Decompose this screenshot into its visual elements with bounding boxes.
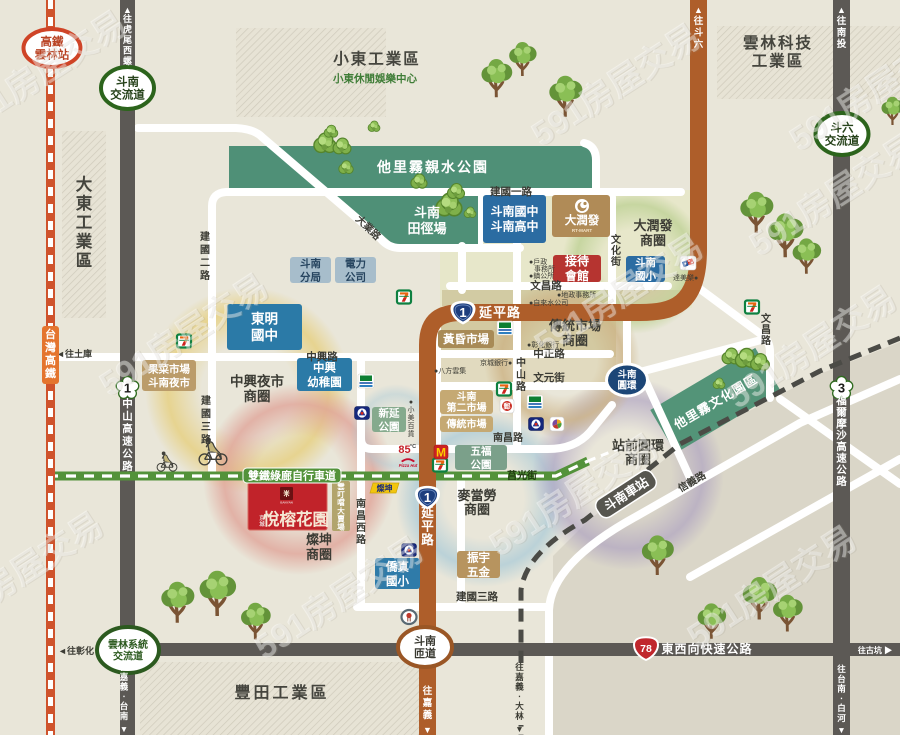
svg-text:路: 路 — [356, 533, 367, 546]
svg-text:東: 東 — [76, 193, 93, 213]
svg-text:雙鐵綠廊自行車道: 雙鐵綠廊自行車道 — [248, 469, 336, 483]
svg-text:小東休閒娛樂中心: 小東休閒娛樂中心 — [332, 72, 417, 85]
svg-text:‧: ‧ — [518, 691, 521, 701]
svg-text:螺: 螺 — [123, 55, 132, 66]
svg-text:斗南: 斗南 — [457, 390, 477, 403]
svg-text:大潤發: 大潤發 — [565, 213, 600, 227]
svg-text:匝道: 匝道 — [414, 646, 436, 660]
svg-text:他里霧親水公園: 他里霧親水公園 — [376, 159, 489, 175]
svg-text:街: 街 — [610, 255, 621, 268]
svg-text:建: 建 — [199, 230, 211, 243]
svg-text:接待: 接待 — [565, 253, 589, 268]
svg-text:斗南: 斗南 — [617, 369, 637, 381]
svg-text:公司: 公司 — [345, 271, 366, 283]
svg-text:昌: 昌 — [356, 510, 366, 522]
svg-text:平: 平 — [421, 520, 434, 534]
svg-text:傳統市場: 傳統市場 — [446, 418, 487, 431]
svg-text:爾: 爾 — [835, 407, 847, 419]
svg-text:燦坤: 燦坤 — [306, 532, 332, 547]
svg-text:▲: ▲ — [694, 5, 703, 15]
svg-text:台: 台 — [45, 327, 56, 341]
svg-text:●自來水公司: ●自來水公司 — [529, 298, 568, 307]
svg-text:▲: ▲ — [837, 5, 846, 15]
svg-text:●: ● — [409, 399, 413, 406]
svg-text:文元街: 文元街 — [532, 371, 565, 384]
svg-text:路: 路 — [421, 532, 434, 547]
svg-text:商圈: 商圈 — [464, 502, 490, 517]
svg-text:電力: 電力 — [345, 257, 366, 270]
svg-text:五福: 五福 — [471, 444, 492, 457]
svg-text:斗南: 斗南 — [116, 75, 139, 89]
svg-text:文昌路: 文昌路 — [529, 279, 562, 292]
svg-text:分局: 分局 — [300, 270, 321, 283]
svg-text:往: 往 — [837, 15, 847, 27]
svg-text:●鎮公所: ●鎮公所 — [529, 271, 554, 280]
svg-text:公園: 公園 — [471, 459, 492, 471]
svg-text:沙: 沙 — [836, 430, 847, 442]
svg-text:斗南: 斗南 — [414, 634, 436, 648]
svg-text:▼: ▼ — [423, 725, 432, 735]
svg-text:山: 山 — [516, 368, 526, 381]
svg-text:建: 建 — [200, 394, 212, 407]
svg-text:投: 投 — [837, 38, 847, 50]
svg-text:南昌路: 南昌路 — [493, 431, 524, 444]
svg-text:事務所: 事務所 — [534, 264, 555, 273]
svg-text:BANYAN: BANYAN — [280, 501, 293, 505]
svg-text:RT-MART: RT-MART — [572, 228, 592, 233]
svg-text:鐵: 鐵 — [45, 366, 56, 380]
svg-text:義: 義 — [515, 682, 524, 692]
svg-text:昌: 昌 — [761, 324, 771, 336]
svg-text:區: 區 — [76, 251, 93, 270]
svg-text:斗南國中: 斗南國中 — [490, 204, 538, 219]
svg-text:延: 延 — [420, 505, 434, 520]
svg-text:高: 高 — [836, 440, 847, 453]
svg-text:‧: ‧ — [840, 693, 843, 703]
svg-text:中興夜市: 中興夜市 — [230, 373, 284, 389]
svg-text:二: 二 — [200, 257, 210, 269]
svg-text:圓環: 圓環 — [617, 380, 637, 392]
svg-text:高: 高 — [45, 353, 56, 367]
svg-text:公: 公 — [122, 448, 133, 460]
svg-text:西: 西 — [356, 522, 366, 534]
svg-text:化: 化 — [611, 244, 621, 257]
svg-text:義: 義 — [120, 682, 129, 692]
svg-text:文: 文 — [761, 312, 772, 325]
svg-text:五金: 五金 — [467, 565, 490, 579]
svg-text:往: 往 — [837, 664, 846, 674]
svg-text:延平路: 延平路 — [478, 305, 521, 320]
svg-text:交流道: 交流道 — [113, 649, 143, 662]
svg-text:悅榕花園: 悅榕花園 — [263, 509, 329, 529]
svg-text:振宇: 振宇 — [467, 550, 490, 564]
svg-text:高: 高 — [122, 422, 133, 435]
svg-text:雲林系統: 雲林系統 — [108, 638, 148, 651]
svg-text:路: 路 — [201, 433, 212, 446]
svg-text:斗南: 斗南 — [300, 257, 321, 270]
svg-text:工業區: 工業區 — [752, 51, 805, 70]
svg-text:小: 小 — [408, 405, 415, 414]
svg-text:嘉: 嘉 — [514, 672, 524, 682]
svg-text:台: 台 — [837, 674, 846, 684]
svg-text:國: 國 — [201, 408, 211, 420]
svg-text:百: 百 — [408, 422, 415, 430]
svg-text:路: 路 — [516, 380, 527, 393]
svg-text:3: 3 — [838, 381, 845, 396]
svg-text:白: 白 — [837, 703, 846, 713]
svg-text:大: 大 — [76, 174, 93, 194]
svg-text:林: 林 — [515, 711, 524, 721]
svg-text:78: 78 — [640, 643, 652, 655]
svg-text:商圈: 商圈 — [306, 547, 332, 562]
svg-text:路: 路 — [122, 460, 133, 473]
svg-text:貨: 貨 — [408, 429, 415, 438]
svg-text:往: 往 — [515, 662, 524, 672]
svg-text:嘉: 嘉 — [119, 672, 129, 682]
svg-text:▼: ▼ — [515, 724, 523, 734]
svg-text:往: 往 — [423, 685, 433, 697]
svg-text:美: 美 — [408, 413, 415, 422]
svg-text:業: 業 — [76, 231, 93, 251]
svg-text:南: 南 — [356, 497, 366, 510]
svg-text:南: 南 — [837, 684, 846, 694]
svg-text:麥當勞: 麥當勞 — [456, 488, 496, 503]
svg-text:斗南高中: 斗南高中 — [490, 219, 538, 234]
svg-text:斗南: 斗南 — [414, 205, 440, 220]
svg-text:‧: ‧ — [123, 691, 126, 701]
svg-text:大: 大 — [515, 701, 524, 711]
svg-text:公園: 公園 — [379, 421, 400, 433]
svg-text:商圈: 商圈 — [244, 388, 271, 404]
svg-text:速: 速 — [836, 452, 847, 465]
svg-text:往: 往 — [694, 15, 704, 27]
svg-text:往古坑 ▶: 往古坑 ▶ — [858, 645, 892, 655]
svg-text:國中: 國中 — [251, 327, 278, 343]
svg-text:●八方雲集: ●八方雲集 — [434, 366, 466, 375]
svg-text:灣: 灣 — [45, 340, 56, 354]
svg-text:往: 往 — [120, 662, 129, 672]
svg-text:第二市場: 第二市場 — [447, 401, 487, 414]
svg-text:西: 西 — [123, 46, 132, 56]
svg-text:▼: ▼ — [120, 724, 128, 734]
svg-text:路: 路 — [761, 334, 772, 347]
svg-text:中: 中 — [122, 397, 133, 410]
svg-text:福: 福 — [835, 394, 847, 407]
svg-text:三: 三 — [201, 421, 211, 433]
svg-text:南: 南 — [837, 27, 847, 39]
svg-text:路: 路 — [836, 475, 847, 488]
svg-text:大潤發: 大潤發 — [633, 218, 672, 233]
svg-text:文: 文 — [611, 233, 622, 246]
svg-text:國: 國 — [200, 244, 210, 256]
svg-text:幼稚園: 幼稚園 — [307, 375, 342, 389]
svg-text:田徑場: 田徑場 — [407, 221, 446, 236]
svg-text:工: 工 — [76, 214, 93, 232]
svg-text:中興路: 中興路 — [306, 350, 338, 363]
svg-text:中: 中 — [516, 356, 526, 369]
svg-text:黃昏市場: 黃昏市場 — [442, 332, 489, 346]
svg-text:雲林科技: 雲林科技 — [743, 33, 813, 52]
svg-text:義: 義 — [423, 709, 433, 721]
svg-text:河: 河 — [837, 713, 846, 723]
svg-text:小東工業區: 小東工業區 — [333, 49, 421, 68]
svg-text:山: 山 — [122, 410, 133, 423]
svg-text:新延: 新延 — [379, 406, 400, 419]
svg-text:路: 路 — [200, 269, 211, 282]
svg-text:摩: 摩 — [836, 417, 847, 430]
svg-text:交流道: 交流道 — [110, 88, 145, 102]
svg-text:◄往土庫: ◄往土庫 — [56, 348, 92, 359]
svg-text:◄往彰化: ◄往彰化 — [58, 645, 94, 656]
svg-text:京城銀行●: 京城銀行● — [480, 358, 512, 367]
svg-text:●戶政: ●戶政 — [529, 257, 547, 266]
svg-text:會館: 會館 — [565, 268, 589, 283]
svg-text:建國三路: 建國三路 — [455, 590, 498, 603]
svg-text:場: 場 — [337, 522, 345, 532]
svg-text:莒光街: 莒光街 — [507, 469, 537, 482]
svg-text:豐田工業區: 豐田工業區 — [234, 683, 329, 702]
svg-text:台: 台 — [120, 701, 129, 711]
svg-text:▼: ▼ — [837, 725, 845, 735]
svg-text:建國一路: 建國一路 — [489, 185, 532, 198]
svg-text:公: 公 — [836, 464, 847, 476]
svg-text:速: 速 — [122, 435, 133, 448]
svg-text:南: 南 — [120, 711, 129, 721]
svg-text:嘉: 嘉 — [422, 697, 433, 709]
